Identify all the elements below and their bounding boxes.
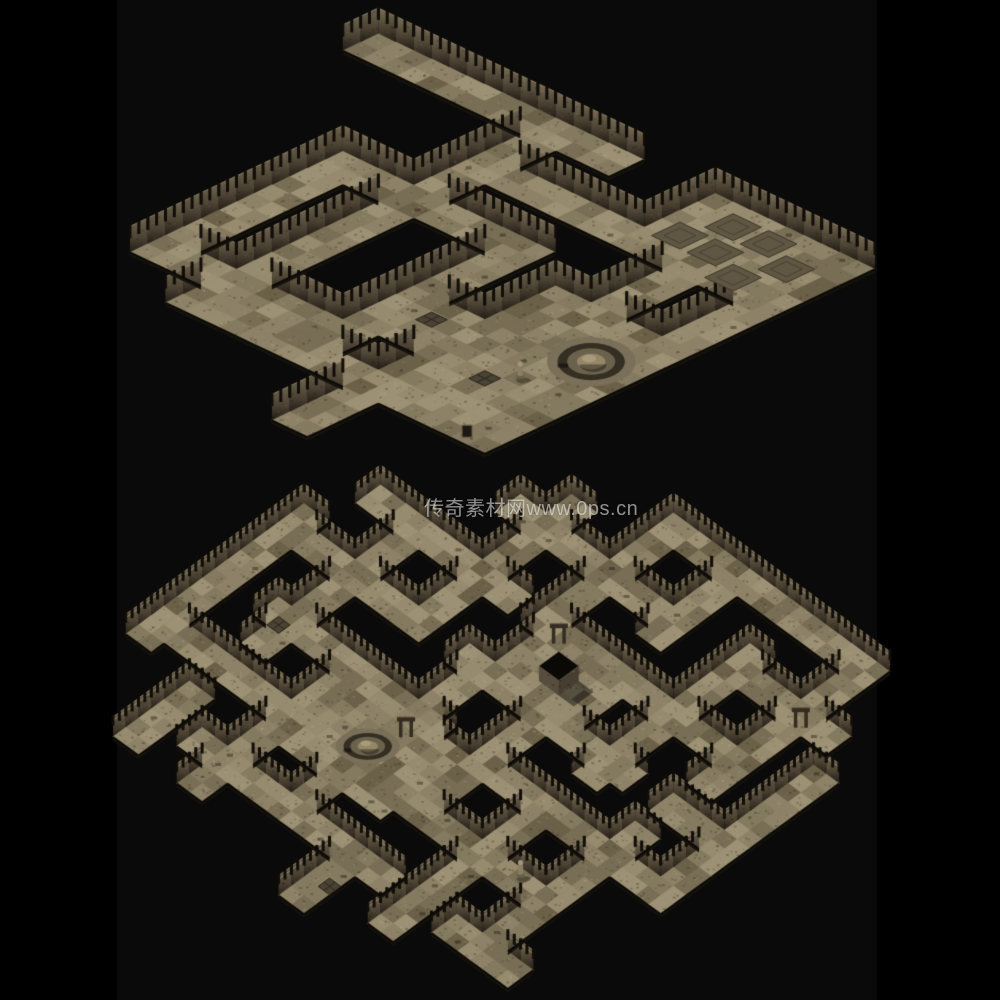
screenshot-root: 传奇素材网www.0ps.cn — [0, 0, 1000, 1000]
map-bottom-region — [113, 465, 890, 995]
map-top-region — [130, 8, 875, 460]
